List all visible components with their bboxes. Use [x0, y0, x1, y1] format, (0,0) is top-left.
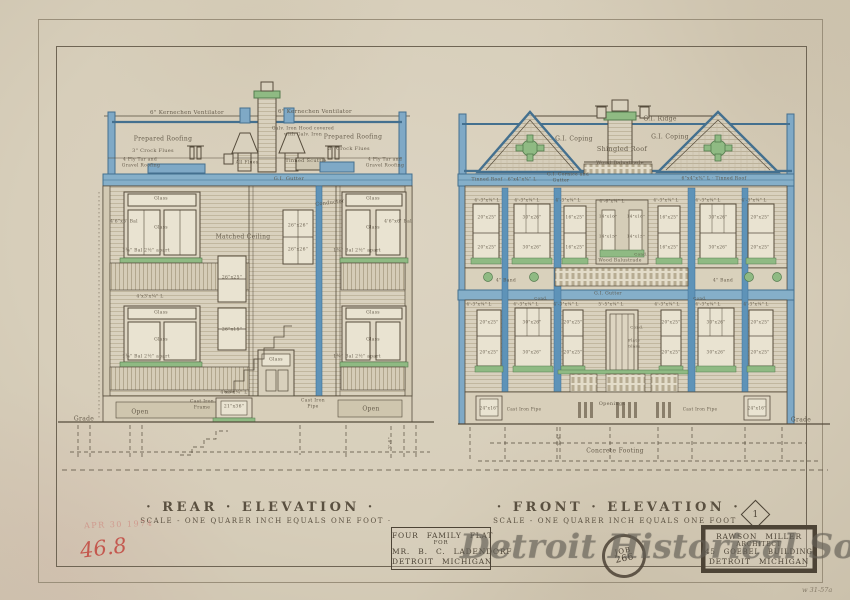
project-title-block: FOUR FAMILY FLAT FOR MR. B. C. LADENDORF… — [391, 527, 491, 570]
porch-balustrade — [606, 374, 645, 392]
front-elevation-scale: SCALE - ONE QUARER INCH EQUALS ONE FOOT — [493, 517, 737, 525]
project-city: DETROIT MICHIGAN — [392, 557, 490, 566]
rear-elevation-drawing — [58, 82, 434, 460]
porch-balustrade — [570, 374, 597, 392]
porch-balustrade — [651, 374, 678, 392]
foundation-openings — [578, 402, 671, 418]
porch-column — [742, 188, 748, 392]
frieze-balustrade — [555, 268, 688, 286]
project-for: FOR — [392, 540, 490, 547]
rear-downspout — [316, 186, 322, 422]
sheet-number: 1 — [753, 509, 759, 519]
rear-elevation-scale: SCALE - ONE QUARER INCH EQUALS ONE FOOT … — [140, 517, 391, 525]
architect-role: ARCHITECT — [702, 541, 816, 549]
architect-address: 45 GOEBEL BUILDING — [702, 548, 816, 557]
rear-chimney — [258, 96, 276, 172]
project-name: FOUR FAMILY FLAT — [392, 531, 490, 540]
porch-column — [688, 188, 695, 392]
rear-ventilator-left — [240, 108, 250, 123]
porch-column — [502, 188, 508, 392]
architect-name: RAWSON MILLER — [702, 532, 816, 541]
rear-footing-dashed — [70, 425, 430, 460]
job-stamp-number: 266 — [615, 553, 635, 566]
front-elevation-drawing — [458, 100, 830, 462]
front-corner-post-right — [787, 114, 794, 424]
architect-title-block: RAWSON MILLER ARCHITECT 45 GOEBEL BUILDI… — [701, 525, 817, 573]
project-client: MR. B. C. LADENDORF — [392, 547, 490, 556]
architect-city: DETROIT MICHIGAN — [702, 557, 816, 566]
catalog-corner-note: w 31-57a — [802, 586, 832, 594]
rear-ventilator-right — [284, 108, 294, 123]
front-footing-dashed — [470, 427, 818, 462]
porch-column — [554, 188, 561, 392]
front-chimney — [608, 120, 632, 166]
rear-elevation-title: · REAR · ELEVATION · — [146, 500, 376, 515]
front-elevation-title: · FRONT · ELEVATION · — [497, 500, 741, 515]
